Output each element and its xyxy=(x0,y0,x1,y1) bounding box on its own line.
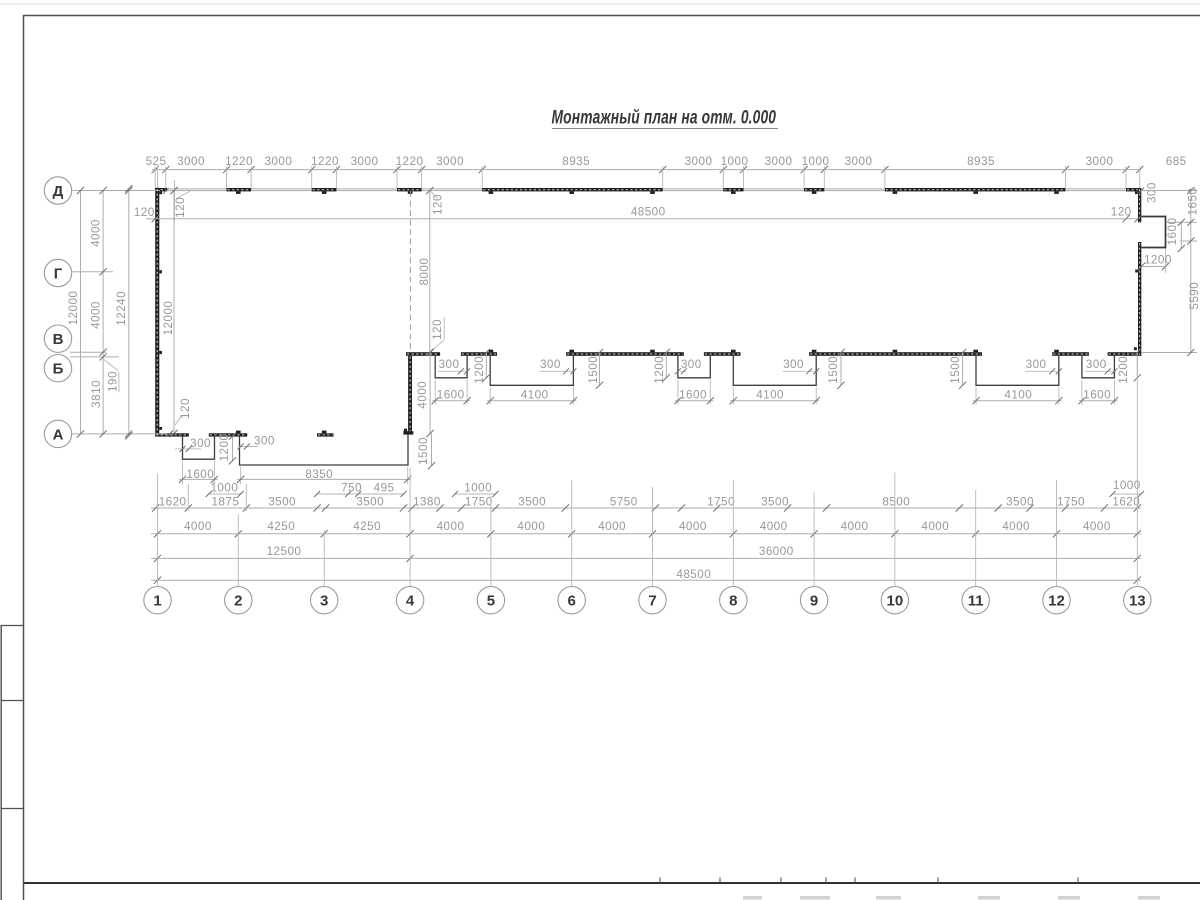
svg-text:300: 300 xyxy=(439,358,460,371)
svg-text:4250: 4250 xyxy=(353,520,381,533)
svg-text:6: 6 xyxy=(568,593,576,610)
svg-text:3500: 3500 xyxy=(268,496,296,509)
svg-text:300: 300 xyxy=(1146,182,1159,203)
svg-text:3000: 3000 xyxy=(765,155,793,168)
svg-text:1200: 1200 xyxy=(1117,356,1130,384)
svg-text:12000: 12000 xyxy=(162,301,175,336)
svg-text:300: 300 xyxy=(254,435,275,448)
svg-text:1600: 1600 xyxy=(679,389,707,402)
svg-text:120: 120 xyxy=(431,319,444,340)
svg-text:4000: 4000 xyxy=(517,520,545,533)
svg-text:4000: 4000 xyxy=(89,301,102,329)
svg-text:1500: 1500 xyxy=(417,437,430,465)
svg-text:4000: 4000 xyxy=(841,520,869,533)
svg-text:4: 4 xyxy=(406,593,415,610)
svg-text:3000: 3000 xyxy=(351,155,379,168)
svg-text:1600: 1600 xyxy=(437,389,465,402)
svg-text:1500: 1500 xyxy=(827,356,840,384)
svg-text:1600: 1600 xyxy=(186,468,214,481)
svg-text:1200: 1200 xyxy=(1144,253,1172,266)
svg-text:1000: 1000 xyxy=(210,482,238,495)
svg-text:Б: Б xyxy=(53,361,64,378)
svg-text:120: 120 xyxy=(179,398,192,419)
svg-text:1600: 1600 xyxy=(1166,218,1179,246)
svg-text:2: 2 xyxy=(234,593,242,610)
svg-text:300: 300 xyxy=(190,437,211,450)
svg-text:300: 300 xyxy=(540,358,561,371)
svg-text:9: 9 xyxy=(810,593,818,610)
svg-text:3500: 3500 xyxy=(518,496,546,509)
svg-text:120: 120 xyxy=(174,197,187,218)
svg-text:36000: 36000 xyxy=(759,545,794,558)
svg-text:13: 13 xyxy=(1129,593,1146,610)
svg-text:120: 120 xyxy=(432,194,445,215)
svg-text:12500: 12500 xyxy=(267,545,302,558)
svg-text:4000: 4000 xyxy=(679,520,707,533)
svg-text:12000: 12000 xyxy=(67,291,80,326)
svg-text:750: 750 xyxy=(341,482,362,495)
svg-text:8000: 8000 xyxy=(418,258,431,286)
svg-text:3000: 3000 xyxy=(436,155,464,168)
svg-text:120: 120 xyxy=(134,206,155,219)
svg-text:10: 10 xyxy=(887,593,904,610)
svg-text:8935: 8935 xyxy=(967,155,995,168)
svg-text:3000: 3000 xyxy=(264,155,292,168)
svg-text:1620: 1620 xyxy=(1112,496,1140,509)
svg-text:4000: 4000 xyxy=(921,520,949,533)
svg-text:4100: 4100 xyxy=(521,389,549,402)
svg-text:11: 11 xyxy=(968,593,984,610)
svg-text:1220: 1220 xyxy=(396,155,424,168)
svg-text:3000: 3000 xyxy=(845,155,873,168)
svg-text:48500: 48500 xyxy=(676,568,711,581)
svg-text:3000: 3000 xyxy=(177,155,205,168)
svg-text:Д: Д xyxy=(53,183,64,200)
svg-text:1620: 1620 xyxy=(159,496,187,509)
svg-text:1750: 1750 xyxy=(707,496,735,509)
svg-text:3000: 3000 xyxy=(1086,155,1114,168)
svg-text:495: 495 xyxy=(374,482,395,495)
svg-text:3: 3 xyxy=(320,593,328,610)
svg-text:8500: 8500 xyxy=(882,496,910,509)
svg-text:300: 300 xyxy=(783,358,804,371)
svg-text:1: 1 xyxy=(153,593,161,610)
svg-text:1750: 1750 xyxy=(1057,496,1085,509)
svg-text:4250: 4250 xyxy=(267,520,295,533)
svg-text:4100: 4100 xyxy=(1004,389,1032,402)
svg-text:4000: 4000 xyxy=(184,520,212,533)
svg-text:48500: 48500 xyxy=(631,206,666,219)
svg-text:525: 525 xyxy=(146,155,167,168)
svg-text:685: 685 xyxy=(1166,155,1187,168)
svg-text:4000: 4000 xyxy=(437,520,465,533)
svg-text:8935: 8935 xyxy=(562,155,590,168)
svg-text:120: 120 xyxy=(1111,206,1132,219)
svg-text:В: В xyxy=(53,331,64,348)
svg-text:1500: 1500 xyxy=(587,356,600,384)
svg-text:Г: Г xyxy=(54,265,63,282)
svg-text:3500: 3500 xyxy=(1006,496,1034,509)
svg-text:1500: 1500 xyxy=(949,356,962,384)
svg-text:3500: 3500 xyxy=(761,496,789,509)
svg-text:3500: 3500 xyxy=(356,496,384,509)
svg-text:3810: 3810 xyxy=(90,380,103,408)
svg-text:1000: 1000 xyxy=(1113,479,1141,492)
svg-text:1750: 1750 xyxy=(465,496,493,509)
svg-text:1200: 1200 xyxy=(653,356,666,384)
svg-text:1220: 1220 xyxy=(225,155,253,168)
svg-text:5590: 5590 xyxy=(1188,282,1200,310)
svg-text:4000: 4000 xyxy=(598,520,626,533)
svg-text:7: 7 xyxy=(648,593,656,610)
svg-text:8350: 8350 xyxy=(305,468,333,481)
svg-text:1200: 1200 xyxy=(218,434,231,462)
svg-text:4000: 4000 xyxy=(760,520,788,533)
svg-text:1600: 1600 xyxy=(1083,389,1111,402)
svg-text:А: А xyxy=(53,426,64,443)
svg-text:300: 300 xyxy=(681,358,702,371)
svg-text:12240: 12240 xyxy=(115,291,128,326)
svg-text:1000: 1000 xyxy=(802,155,830,168)
svg-text:4000: 4000 xyxy=(416,381,429,409)
svg-text:12: 12 xyxy=(1048,593,1065,610)
svg-text:4000: 4000 xyxy=(1083,520,1111,533)
svg-text:1380: 1380 xyxy=(413,496,441,509)
svg-text:190: 190 xyxy=(107,371,120,392)
svg-text:1220: 1220 xyxy=(311,155,339,168)
svg-text:300: 300 xyxy=(1086,358,1107,371)
svg-text:8: 8 xyxy=(729,593,737,610)
svg-text:5: 5 xyxy=(487,593,495,610)
svg-text:4000: 4000 xyxy=(1002,520,1030,533)
svg-text:1875: 1875 xyxy=(211,496,239,509)
svg-text:1650: 1650 xyxy=(1187,188,1200,216)
svg-text:5750: 5750 xyxy=(610,496,638,509)
svg-text:1200: 1200 xyxy=(473,356,486,384)
svg-text:3000: 3000 xyxy=(685,155,713,168)
svg-text:300: 300 xyxy=(1026,358,1047,371)
svg-text:4000: 4000 xyxy=(89,219,102,247)
svg-text:Монтажный план на отм. 0.000: Монтажный план на отм. 0.000 xyxy=(552,106,777,128)
svg-text:4100: 4100 xyxy=(756,389,784,402)
svg-text:1000: 1000 xyxy=(464,482,492,495)
svg-text:1000: 1000 xyxy=(721,155,749,168)
